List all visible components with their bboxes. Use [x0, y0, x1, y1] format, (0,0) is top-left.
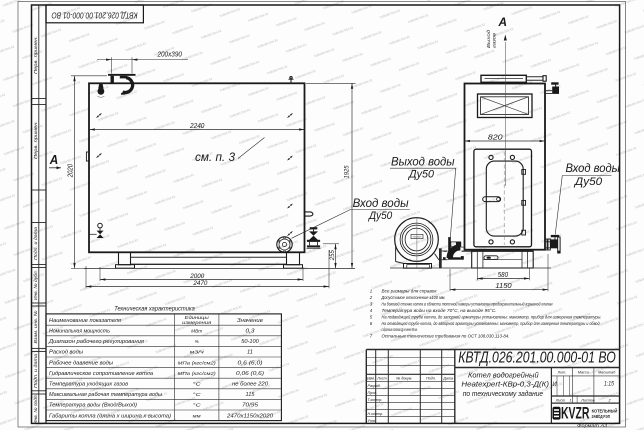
svg-text:Гидравлическое сопротивление к: Гидравлическое сопротивление котла	[49, 371, 153, 377]
svg-text:см. п. 3: см. п. 3	[195, 150, 235, 164]
svg-text:0,06 (0,6): 0,06 (0,6)	[236, 371, 264, 377]
svg-text:газов: газов	[492, 32, 497, 48]
svg-text:820: 820	[488, 132, 504, 141]
svg-text:И: И	[552, 382, 557, 388]
svg-text:Инв. № подл.: Инв. № подл.	[33, 394, 38, 424]
svg-text:Подп. и дата: Подп. и дата	[33, 226, 38, 260]
svg-text:Ду50: Ду50	[407, 168, 435, 180]
svg-text:Вход воды: Вход воды	[566, 161, 621, 175]
svg-text:580: 580	[498, 272, 508, 279]
svg-text:по техническому задание: по техническому задание	[463, 390, 543, 398]
svg-text:Т.контр.: Т.контр.	[368, 398, 383, 402]
svg-text:Разраб.: Разраб.	[368, 384, 381, 388]
svg-text:Н.контр.: Н.контр.	[368, 412, 384, 416]
svg-text:Изм.: Изм.	[367, 377, 375, 381]
svg-text:Рабочее давление воды: Рабочее давление воды	[49, 360, 113, 366]
svg-text:Лит.: Лит.	[557, 371, 567, 375]
svg-text:Дата: Дата	[442, 377, 453, 381]
svg-text:1150: 1150	[495, 283, 511, 290]
svg-text:Температура воды на входе 70°С: Температура воды на входе 70°С, на выход…	[382, 308, 497, 313]
svg-text:Расход воды: Расход воды	[49, 350, 83, 356]
svg-text:KVZR: KVZR	[561, 405, 589, 423]
svg-text:115: 115	[246, 392, 255, 398]
svg-text:Формат А3: Формат А3	[577, 423, 608, 428]
svg-text:МПа (кгс/см2): МПа (кгс/см2)	[178, 360, 217, 365]
svg-text:2: 2	[607, 399, 610, 403]
svg-text:2: 2	[369, 295, 373, 300]
svg-text:Ду50: Ду50	[573, 176, 603, 188]
svg-text:A: A	[49, 152, 58, 167]
svg-text:2240: 2240	[189, 121, 205, 130]
svg-text:На боковой стенке котла в обла: На боковой стенке котла в области топочн…	[382, 300, 553, 306]
svg-text:На отводящей трубе котла, до з: На отводящей трубе котла, до запорной ар…	[382, 320, 600, 326]
svg-text:с обратным клапаном Ду не мен: с обратным клапаном Ду не менее 50 мм.	[382, 327, 418, 332]
svg-text:Пров.: Пров.	[368, 391, 378, 395]
svg-text:°С: °С	[193, 382, 202, 387]
svg-text:Вход воды: Вход воды	[353, 196, 409, 210]
svg-text:Подп.: Подп.	[426, 377, 436, 381]
svg-text:Лист: Лист	[376, 377, 387, 381]
svg-text:ЗАВОД РЭП: ЗАВОД РЭП	[592, 414, 610, 419]
svg-text:Взам. инв. №: Взам. инв. №	[33, 310, 38, 343]
svg-text:Наименование показателя: Наименование показателя	[49, 318, 121, 324]
svg-text:На подводящей трубе котла, до: На подводящей трубе котла, до запорной а…	[382, 313, 602, 319]
svg-text:Подп. и дата: Подп. и дата	[33, 353, 38, 388]
svg-text:255: 255	[329, 250, 336, 261]
svg-text:°С: °С	[193, 403, 202, 408]
svg-text:°С: °С	[193, 392, 202, 397]
svg-text:Котел водогрейный: Котел водогрейный	[468, 371, 539, 379]
svg-text:Температура уходящих газов: Температура уходящих газов	[49, 382, 128, 388]
svg-text:Выход: Выход	[486, 29, 491, 48]
svg-text:измерения: измерения	[182, 321, 212, 326]
svg-text:Перв. примен.: Перв. примен.	[33, 36, 38, 74]
svg-text:Максимальная рабочая температу: Максимальная рабочая температура воды	[49, 392, 162, 398]
svg-text:200х390: 200х390	[157, 52, 183, 59]
svg-text:Значение: Значение	[237, 318, 263, 324]
svg-text:1925: 1925	[344, 165, 351, 178]
svg-text:1: 1	[569, 399, 571, 403]
svg-text:11: 11	[247, 350, 253, 356]
svg-text:Номинальная мощность: Номинальная мощность	[49, 329, 110, 335]
svg-text:м3/ч: м3/ч	[190, 350, 205, 355]
svg-text:Масса: Масса	[578, 371, 589, 375]
svg-text:КВТД.026.201.00.000-01 ВО: КВТД.026.201.00.000-01 ВО	[52, 10, 138, 19]
svg-text:0,6 (6,0): 0,6 (6,0)	[238, 360, 263, 366]
svg-text:1:15: 1:15	[604, 382, 615, 388]
svg-text:0,3: 0,3	[246, 329, 255, 335]
svg-text:Лист: Лист	[555, 399, 566, 403]
svg-text:МПа (кгс/см2): МПа (кгс/см2)	[178, 371, 217, 376]
svg-text:Утв.: Утв.	[368, 419, 376, 423]
svg-text:2470: 2470	[192, 280, 207, 287]
svg-text:Техническая характеристика: Техническая характеристика	[114, 306, 195, 313]
svg-text:2020: 2020	[68, 164, 75, 178]
svg-text:Все размеры для справок: Все размеры для справок	[382, 289, 438, 294]
svg-text:2470х1150х2020: 2470х1150х2020	[226, 413, 273, 419]
svg-text:A: A	[498, 15, 507, 29]
svg-text:70/95: 70/95	[242, 403, 258, 409]
svg-text:МВт: МВт	[191, 329, 202, 334]
svg-text:Листов: Листов	[580, 399, 595, 403]
svg-text:№ докум.: № докум.	[396, 377, 412, 381]
svg-text:Допустимое отклонение ±100 мм.: Допустимое отклонение ±100 мм.	[381, 295, 446, 300]
svg-text:Перв. примен.: Перв. примен.	[33, 121, 38, 159]
svg-text:Диапазон рабочего регулировани: Диапазон рабочего регулирования	[48, 339, 145, 345]
svg-text:2000: 2000	[189, 273, 204, 280]
svg-text:Heatexpert-КВр-0,3-Д(К): Heatexpert-КВр-0,3-Д(К)	[461, 382, 549, 389]
svg-text:Габариты котла (длина х ширина: Габариты котла (длина х ширина х высота)	[49, 413, 171, 419]
svg-text:Масштаб: Масштаб	[598, 371, 616, 375]
svg-text:50-100: 50-100	[241, 339, 259, 345]
svg-text:мм: мм	[193, 413, 202, 418]
svg-text:Инв. № дубл.: Инв. № дубл.	[33, 270, 38, 300]
svg-text:не более 220: не более 220	[232, 382, 268, 388]
svg-text:Ду50: Ду50	[367, 210, 393, 222]
svg-text:Выход воды: Выход воды	[391, 154, 455, 168]
svg-text:Температура воды (Вход/Выход): Температура воды (Вход/Выход)	[49, 403, 137, 409]
svg-text:Остальные технические требован: Остальные технические требования по ОСТ …	[382, 334, 510, 339]
svg-text:КОТЕЛЬНЫЙ: КОТЕЛЬНЫЙ	[592, 409, 618, 414]
svg-text:%: %	[195, 339, 199, 344]
svg-text:КВТД.026.201.00.000-01 ВО: КВТД.026.201.00.000-01 ВО	[458, 350, 616, 367]
